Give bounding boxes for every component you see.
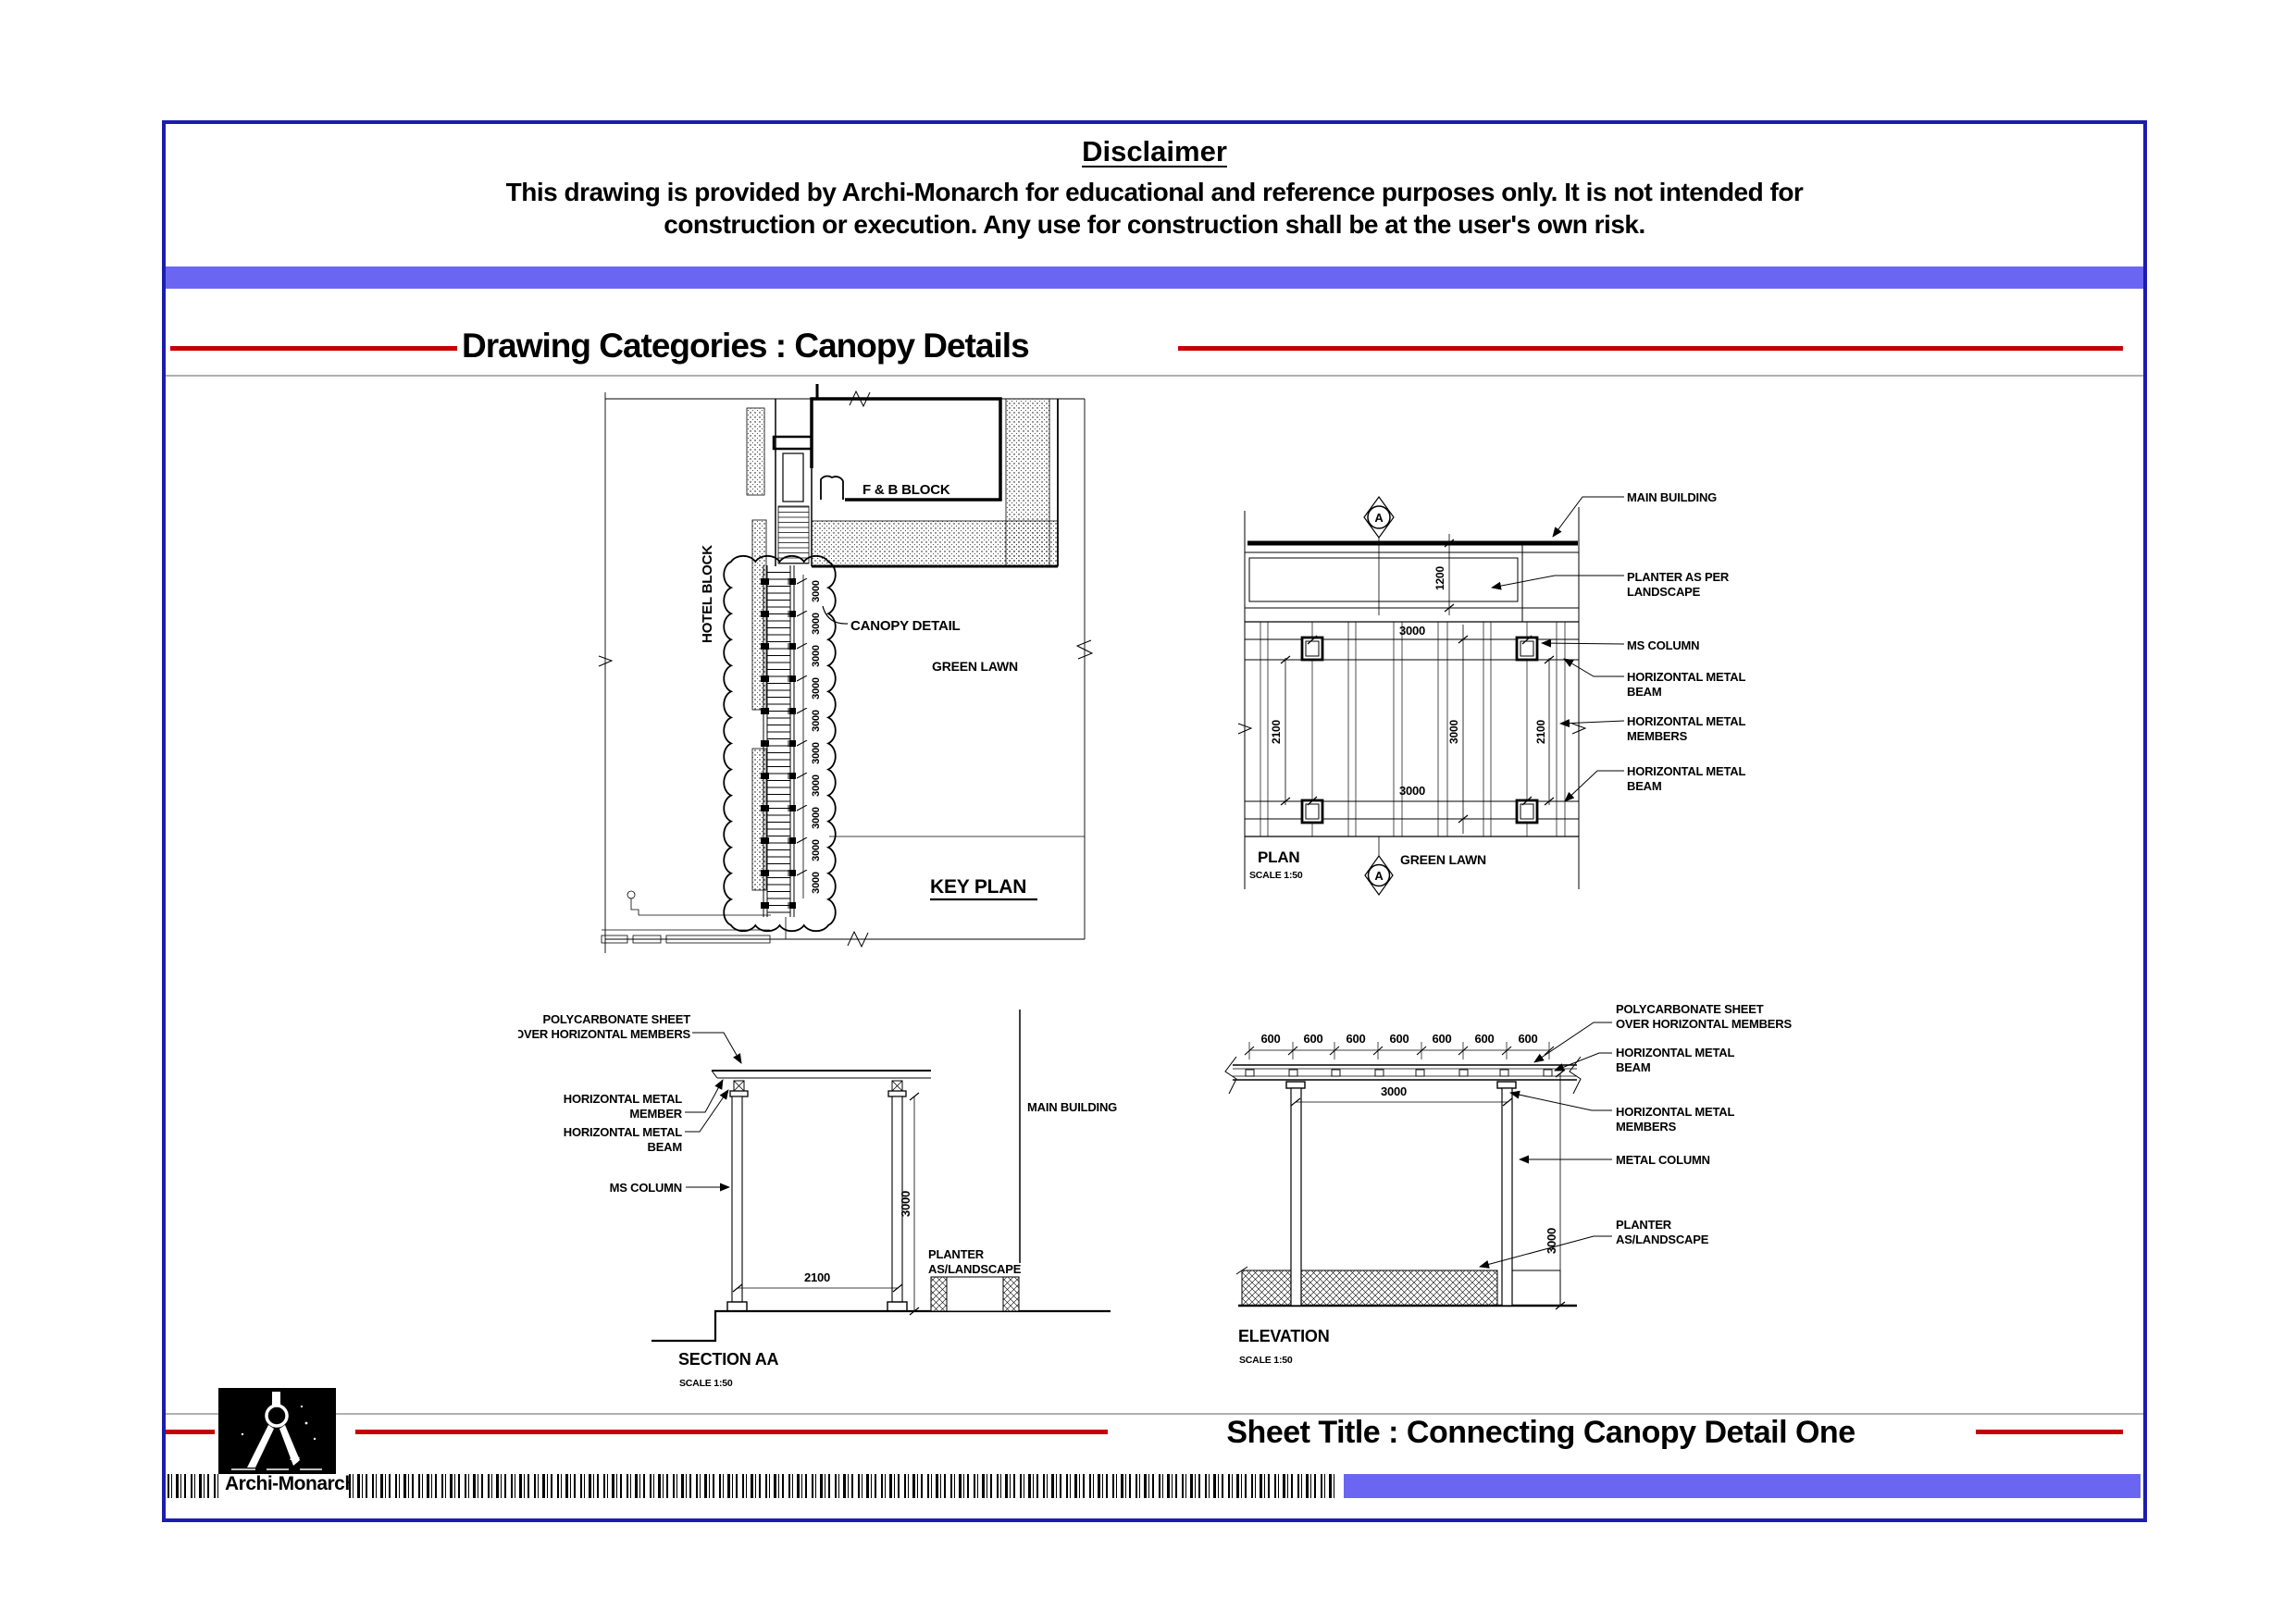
- plan-dim-3000-bottom: 3000: [1399, 784, 1425, 798]
- footer-red-line-right: [1976, 1430, 2123, 1434]
- callout-beam2-b: BEAM: [1627, 779, 1661, 793]
- bay-dim-label: 3000: [811, 774, 822, 797]
- stair-core: [774, 399, 812, 566]
- callout-beam-2: BEAM: [1616, 1060, 1650, 1074]
- drawing-sheet: Disclaimer This drawing is provided by A…: [162, 120, 2147, 1522]
- callout-beam1-b: BEAM: [1627, 685, 1661, 699]
- plan-structure: [1238, 507, 1585, 889]
- callout-poly-2: OVER HORIZONTAL MEMBERS: [518, 1027, 691, 1041]
- plan-dim-2100-left: 2100: [1270, 720, 1283, 744]
- callout-main-building: MAIN BUILDING: [1027, 1100, 1117, 1114]
- callout-poly-1: POLYCARBONATE SHEET: [1616, 1002, 1764, 1016]
- callout-member-2: MEMBER: [629, 1107, 682, 1121]
- callout-planter-1: PLANTER AS PER: [1627, 570, 1730, 584]
- callout-beam-2: BEAM: [648, 1140, 682, 1154]
- page: Disclaimer This drawing is provided by A…: [0, 0, 2296, 1623]
- callout-metal-column: METAL COLUMN: [1616, 1153, 1710, 1167]
- plan-scale: SCALE 1:50: [1249, 870, 1303, 881]
- key-plan-drawing: F & B BLOCK 3000 3000 3000 3000 3000 300…: [555, 384, 1166, 985]
- callout-beam-1: HORIZONTAL METAL: [564, 1125, 682, 1139]
- dim-600: 600: [1260, 1032, 1280, 1046]
- top-blue-bar: [166, 266, 2143, 289]
- plan-dim-3000-top: 3000: [1399, 624, 1425, 638]
- disclaimer-line-2: construction or execution. Any use for c…: [166, 210, 2143, 240]
- callout-main-building: MAIN BUILDING: [1627, 490, 1717, 504]
- green-lawn-label: GREEN LAWN: [932, 659, 1018, 674]
- marker-letter: A: [1374, 869, 1384, 883]
- sheet-title: Sheet Title : Connecting Canopy Detail O…: [1111, 1415, 1971, 1451]
- callout-planter-1: PLANTER: [1616, 1218, 1672, 1232]
- dim-600: 600: [1432, 1032, 1451, 1046]
- plan-title: PLAN: [1258, 849, 1299, 866]
- callout-poly-2: OVER HORIZONTAL MEMBERS: [1616, 1017, 1792, 1031]
- section-dim-2100: 2100: [804, 1270, 830, 1284]
- callout-members-2: MEMBERS: [1616, 1120, 1677, 1134]
- disclaimer-title-text: Disclaimer: [1082, 135, 1227, 167]
- barcode-small: [168, 1474, 219, 1498]
- footer-red-line-mid: [355, 1430, 1108, 1434]
- fb-block-label: F & B BLOCK: [863, 482, 950, 498]
- section-marker-bottom: A: [1365, 836, 1393, 895]
- plan-dim-1200: 1200: [1433, 566, 1446, 590]
- archi-monarch-logo: [218, 1388, 336, 1474]
- marker-letter: A: [1374, 511, 1384, 525]
- callout-ms-column: MS COLUMN: [1627, 638, 1699, 652]
- disclaimer-line-1: This drawing is provided by Archi-Monarc…: [166, 178, 2143, 207]
- callout-beam-1: HORIZONTAL METAL: [1616, 1046, 1734, 1059]
- elevation-scale: SCALE 1:50: [1239, 1355, 1293, 1366]
- callout-beam1-a: HORIZONTAL METAL: [1627, 670, 1745, 684]
- bay-dim-label: 3000: [811, 580, 822, 602]
- barcode-main: [349, 1474, 1337, 1498]
- dim-600: 600: [1518, 1032, 1537, 1046]
- bay-dim-label: 3000: [811, 839, 822, 861]
- section-drawing: 2100 3000 POLYCARBONATE SHEET OVER HORIZ…: [518, 995, 1296, 1402]
- canopy-detail-label: CANOPY DETAIL: [850, 618, 961, 634]
- bay-dim-label: 3000: [811, 742, 822, 764]
- brand-name: Archi-Monarch: [225, 1473, 356, 1495]
- section-scale: SCALE 1:50: [679, 1378, 733, 1389]
- dim-600: 600: [1474, 1032, 1494, 1046]
- bottom-blue-bar: [1344, 1474, 2141, 1498]
- canopy-walkway: [761, 565, 796, 917]
- heading-red-line-left: [170, 346, 457, 351]
- elevation-dim-3000-height: 3000: [1545, 1228, 1558, 1254]
- elevation-planter-ground: [1236, 1267, 1577, 1306]
- dim-600: 600: [1303, 1032, 1322, 1046]
- callout-beam2-a: HORIZONTAL METAL: [1627, 764, 1745, 778]
- callout-members-a: HORIZONTAL METAL: [1627, 714, 1745, 728]
- callout-ms-column: MS COLUMN: [610, 1181, 682, 1195]
- bay-dim-label: 3000: [811, 645, 822, 667]
- callout-members-b: MEMBERS: [1627, 729, 1688, 743]
- callout-planter-2: AS/LANDSCAPE: [928, 1262, 1022, 1276]
- disclaimer-title: Disclaimer: [166, 135, 2143, 168]
- dim-600: 600: [1346, 1032, 1365, 1046]
- callout-poly-1: POLYCARBONATE SHEET: [543, 1012, 691, 1026]
- plan-dim-2100-right: 2100: [1534, 720, 1547, 744]
- plan-drawing: 1200 3000 3000 2100 2100 3000 A A PLAN S…: [1231, 486, 1980, 930]
- section-structure: [652, 1010, 1111, 1341]
- callout-planter-1: PLANTER: [928, 1247, 985, 1261]
- key-plan-title: KEY PLAN: [930, 876, 1026, 898]
- callout-member-1: HORIZONTAL METAL: [564, 1092, 682, 1106]
- bay-dim-label: 3000: [811, 613, 822, 635]
- bay-dim-label: 3000: [811, 710, 822, 732]
- elevation-title: ELEVATION: [1238, 1327, 1330, 1345]
- section-marker-top: A: [1364, 497, 1394, 615]
- bay-dim-label: 3000: [811, 872, 822, 894]
- canopy-bay-dimension: 3000 3000 3000 3000 3000 3000 3000 3000 …: [797, 575, 822, 898]
- callout-planter-2: AS/LANDSCAPE: [1616, 1233, 1709, 1246]
- dim-600: 600: [1389, 1032, 1409, 1046]
- elevation-dim-3000-bay: 3000: [1381, 1084, 1407, 1098]
- heading-red-line-right: [1178, 346, 2123, 351]
- footer-red-dash-left: [166, 1430, 215, 1434]
- section-dim-3000: 3000: [899, 1191, 912, 1217]
- plan-green-lawn: GREEN LAWN: [1400, 852, 1486, 867]
- bay-dim-label: 3000: [811, 677, 822, 700]
- bay-dim-label: 3000: [811, 807, 822, 829]
- section-title: SECTION AA: [678, 1350, 779, 1369]
- elevation-drawing: 600 600 600 600 600 600 600: [1194, 997, 1990, 1395]
- hotel-block-label: HOTEL BLOCK: [700, 545, 715, 643]
- callout-planter-2: LANDSCAPE: [1627, 585, 1701, 599]
- plan-dim-3000-mid: 3000: [1447, 720, 1460, 744]
- callout-members-1: HORIZONTAL METAL: [1616, 1105, 1734, 1119]
- divider-top: [166, 375, 2143, 377]
